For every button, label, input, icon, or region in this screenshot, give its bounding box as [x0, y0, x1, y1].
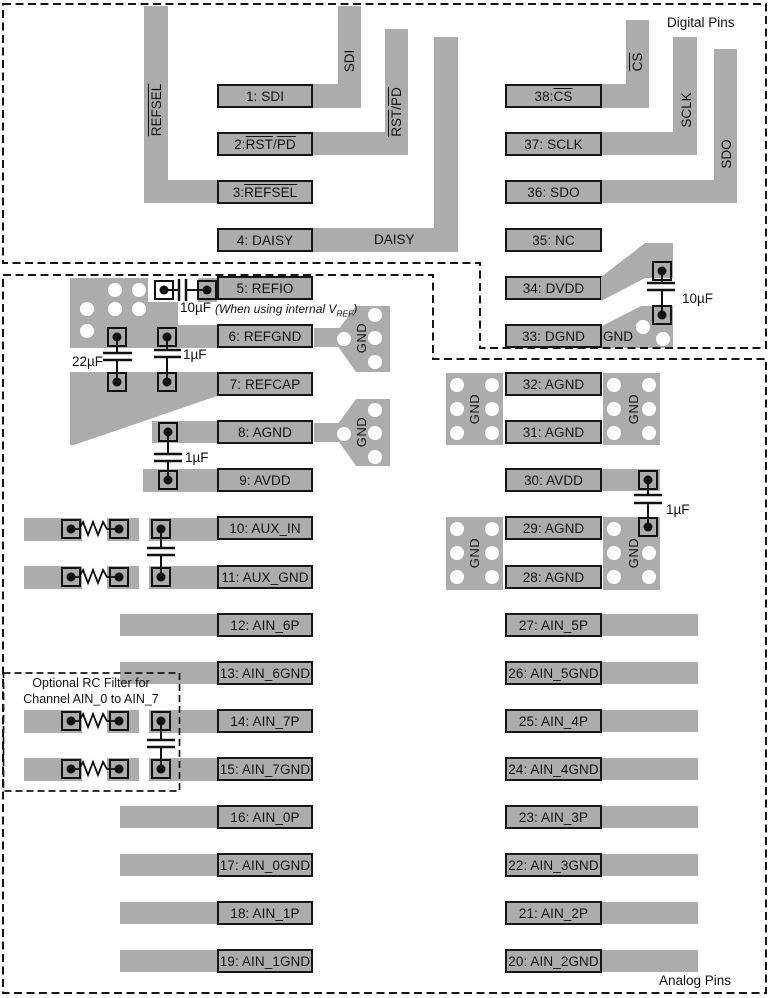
- label-part: RST: [389, 110, 404, 137]
- refgnd-cap-value: 22µF: [70, 354, 103, 369]
- refsel-trace-label: REFSEL: [148, 65, 164, 155]
- gnd-label-pour-29-right: GND: [625, 531, 641, 575]
- refcap-cap-value: 1µF: [183, 347, 207, 362]
- daisy-trace-label: DAISY: [374, 232, 415, 247]
- digital-pins-caption: Digital Pins: [667, 15, 735, 30]
- gnd-label-pour-32-right: GND: [625, 387, 641, 431]
- refio-cap-value: 10µF: [180, 300, 211, 315]
- pcb-layout-diagram: 1: SDI2: RST/PD3: REFSEL4: DAISY5: REFIO…: [0, 0, 770, 998]
- avdd30-cap-value: 1µF: [666, 502, 690, 517]
- rst-pd-trace-label: RST/PD: [388, 67, 404, 157]
- gnd-label-arrow-agnd: GND: [353, 410, 369, 454]
- avdd9-cap-value: 1µF: [185, 450, 209, 465]
- label-layer: Digital Pins Analog Pins SDI RST/PD REFS…: [0, 0, 770, 998]
- sdo-trace-label: SDO: [718, 124, 734, 184]
- label-part: PD: [389, 87, 404, 106]
- internal-vref-note: (When using internal VREF): [215, 302, 357, 318]
- dvdd-cap-value: 10µF: [682, 291, 713, 306]
- gnd-label-pour-29-left: GND: [466, 531, 482, 575]
- optional-rc-filter-line1: Optional RC Filter for: [3, 676, 179, 692]
- cs-trace-label: CS: [629, 37, 645, 87]
- gnd-label-pour-32-left: GND: [466, 387, 482, 431]
- gnd-label-arrow-refgnd: GND: [353, 316, 369, 360]
- label-part: CS: [630, 53, 645, 72]
- label-part: /: [389, 106, 404, 110]
- analog-pins-caption: Analog Pins: [659, 973, 731, 988]
- optional-rc-filter-note: Optional RC Filter for Channel AIN_0 to …: [3, 676, 179, 707]
- sdi-trace-label: SDI: [341, 31, 357, 91]
- sclk-trace-label: SCLK: [678, 75, 694, 145]
- gnd-label-dgnd-pour: GND: [603, 329, 633, 344]
- optional-rc-filter-line2: Channel AIN_0 to AIN_7: [3, 692, 179, 708]
- label-part: REFSEL: [149, 84, 164, 137]
